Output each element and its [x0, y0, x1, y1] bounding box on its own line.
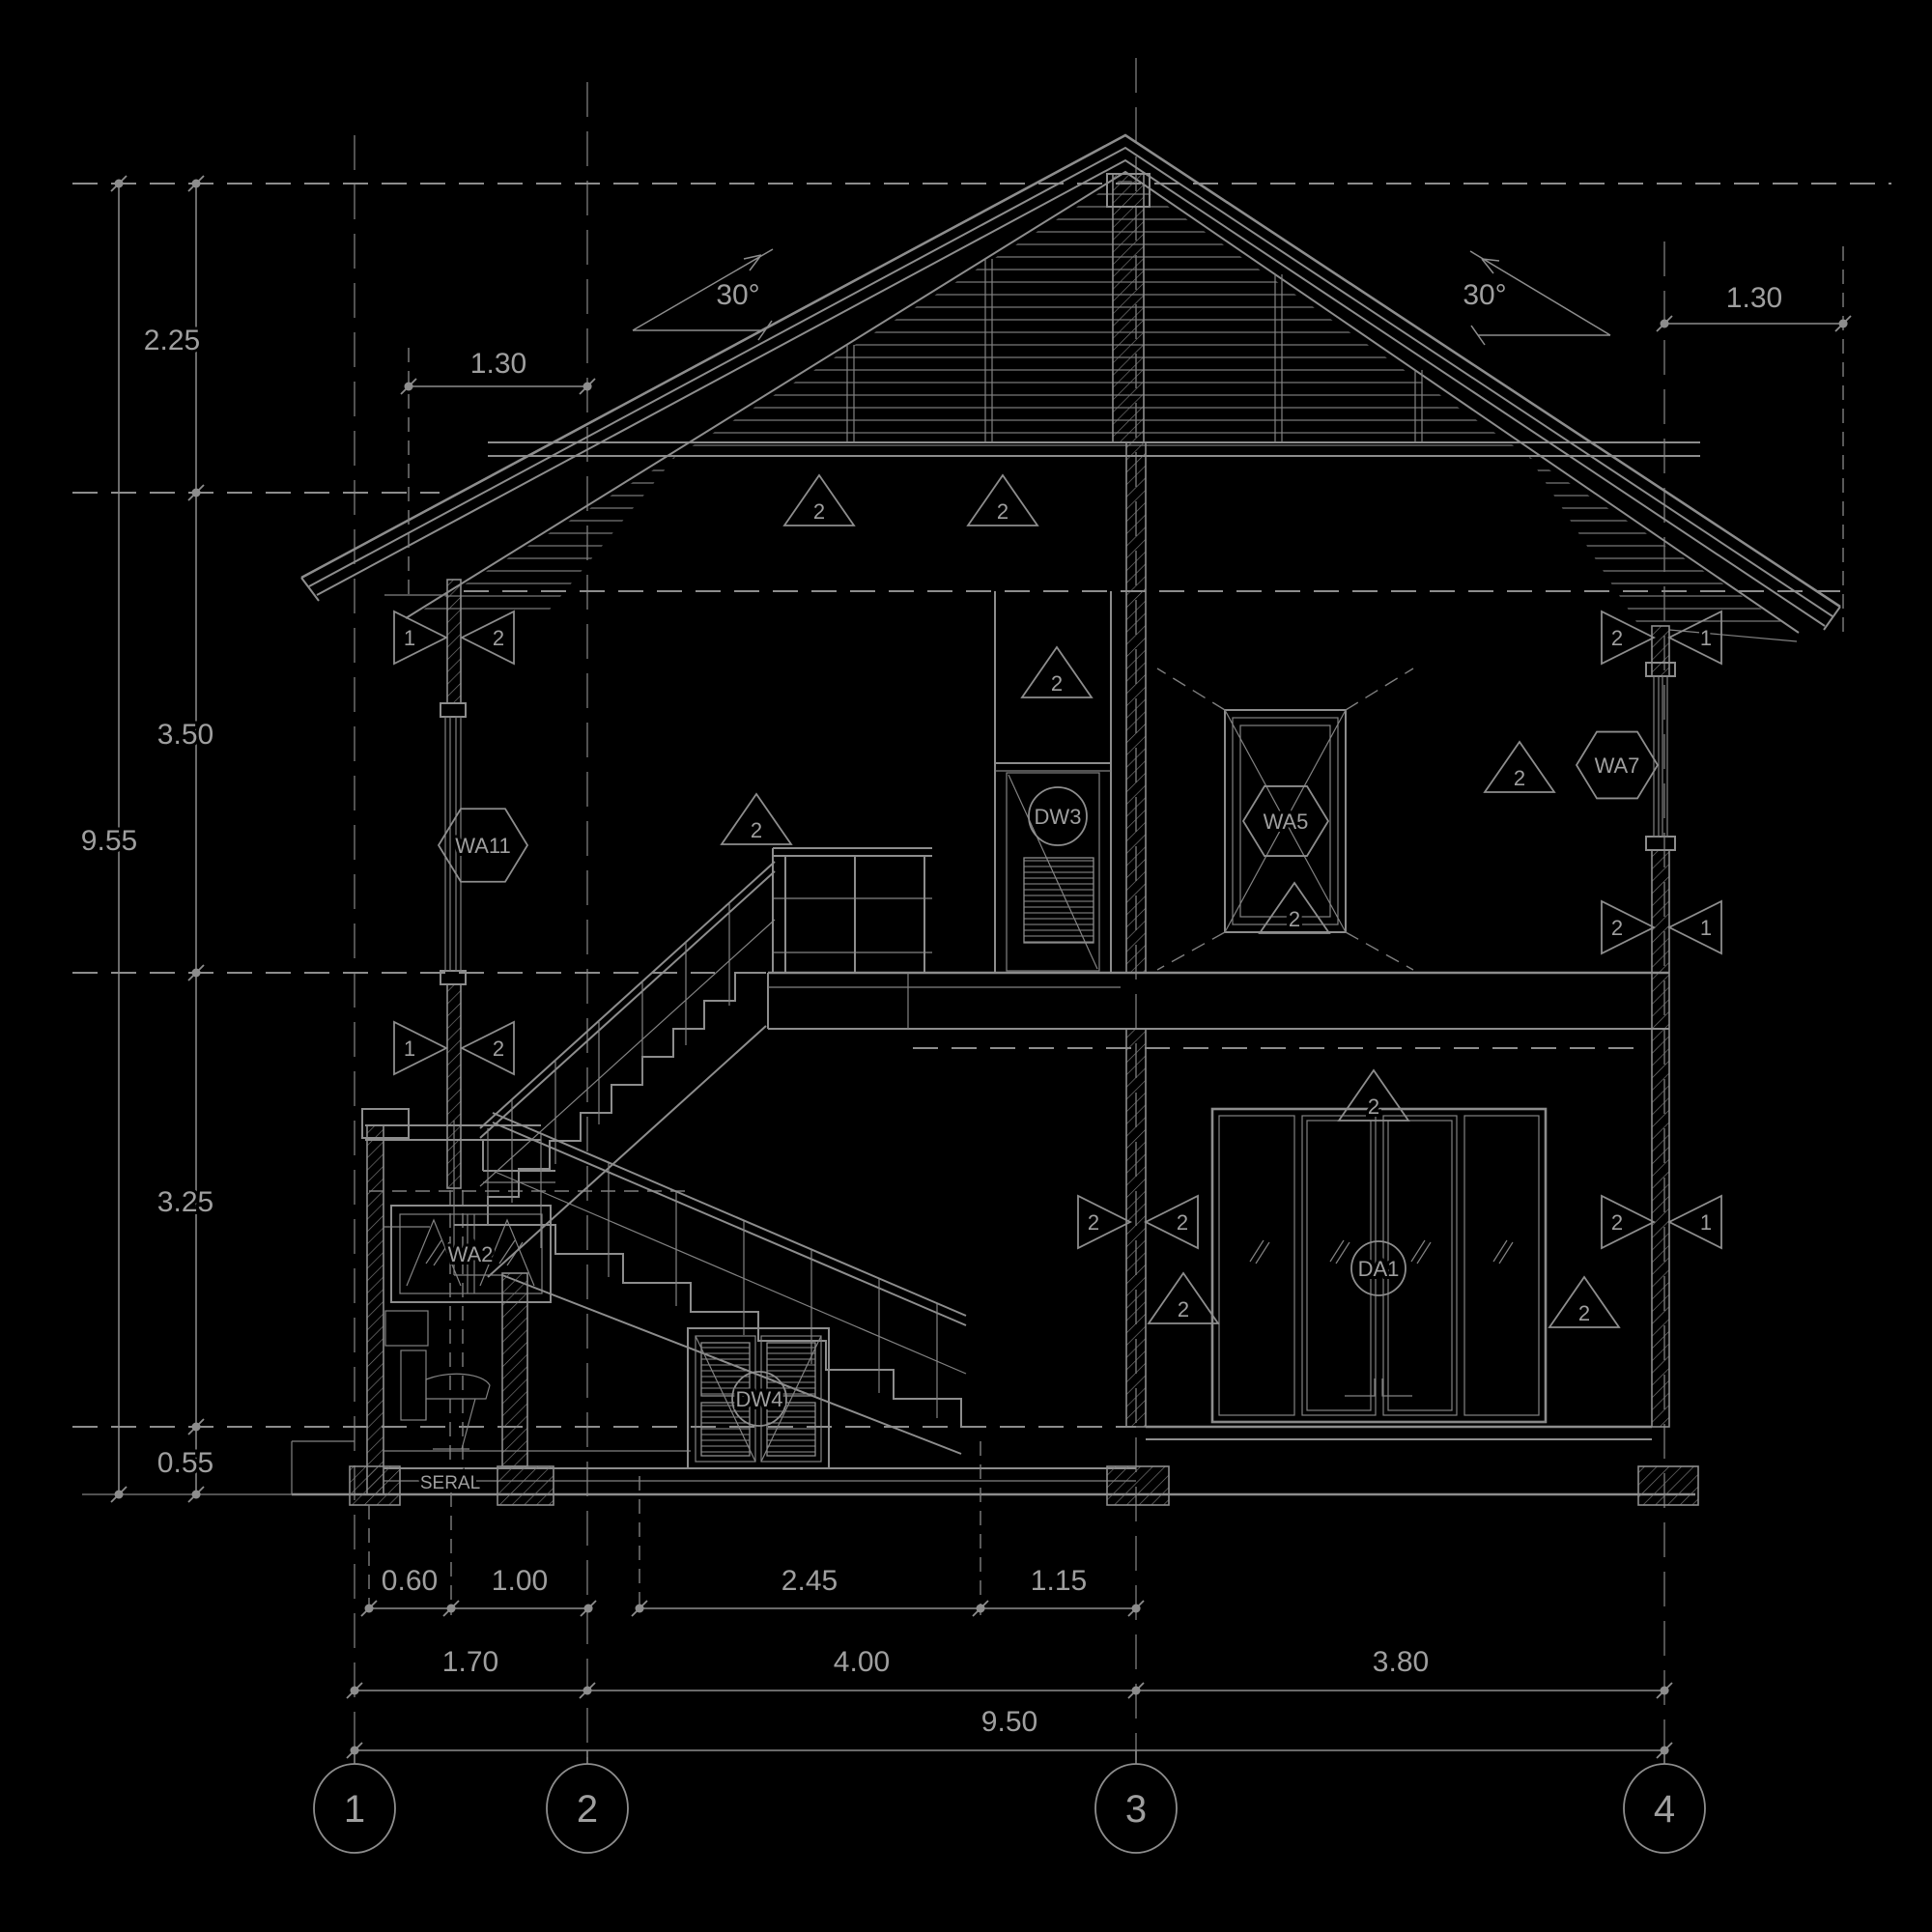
dim-text-plinth-height: 0.55 — [157, 1447, 213, 1479]
roof — [301, 135, 1840, 641]
section-bowtie-marker — [1669, 1196, 1721, 1248]
dim-text-pitch-right: 30° — [1463, 279, 1506, 311]
landing-guardrail — [773, 848, 932, 973]
finish-triangle-label: 2 — [1514, 766, 1525, 790]
section-drawing: SERAL WA2 2.253.509.553.250.551.3030°30°… — [0, 0, 1932, 1932]
dim-text-overhang-left: 1.30 — [470, 348, 526, 380]
dim-text-bay-2-3: 4.00 — [834, 1646, 890, 1678]
dim-text-upper-roof-height: 2.25 — [144, 325, 200, 356]
bowtie-label-right: 1 — [1700, 916, 1712, 940]
dim-text-first-floor-height: 3.25 — [157, 1186, 213, 1218]
finish-triangle-label: 2 — [1578, 1301, 1590, 1325]
walls — [440, 442, 1675, 1464]
toilet-label: SERAL — [420, 1473, 480, 1493]
section-bowtie-marker — [1602, 1196, 1654, 1248]
window-wa7-section — [1646, 663, 1675, 850]
grid-bubble-label: 4 — [1654, 1788, 1675, 1831]
dim-text-second-floor-height: 3.50 — [157, 719, 213, 751]
finish-triangle-label: 2 — [1368, 1094, 1379, 1119]
section-bowtie-marker — [1669, 901, 1721, 953]
bowtie-label-left: 1 — [404, 1037, 415, 1061]
section-bowtie-marker — [1146, 1196, 1198, 1248]
dim-text-stair-width: 2.45 — [781, 1565, 838, 1597]
dim-text-bath-width: 0.60 — [382, 1565, 438, 1597]
door-dw3 — [995, 591, 1111, 973]
dim-text-total-width: 9.50 — [981, 1706, 1037, 1738]
door-tag-label: DW3 — [1035, 805, 1082, 829]
bowtie-label-left: 2 — [1611, 1210, 1623, 1235]
window-tag-label: WA5 — [1264, 810, 1309, 834]
dim-text-wall-offset: 1.00 — [492, 1565, 548, 1597]
dim-text-total-height: 9.55 — [81, 825, 137, 857]
section-bowtie-marker — [394, 1022, 446, 1074]
finish-triangle-label: 2 — [997, 499, 1009, 524]
blueprint-canvas: SERAL WA2 2.253.509.553.250.551.3030°30°… — [0, 0, 1932, 1932]
grid-bubble-label: 2 — [577, 1788, 598, 1831]
grid-bubble-label: 1 — [344, 1788, 365, 1831]
grid-bubbles: 1234 — [314, 1764, 1705, 1853]
section-bowtie-marker — [1602, 901, 1654, 953]
toilet — [401, 1350, 490, 1449]
section-bowtie-marker — [462, 1022, 514, 1074]
dim-text-pitch-left: 30° — [716, 279, 759, 311]
bowtie-label-left: 1 — [404, 626, 415, 650]
bowtie-label-right: 1 — [1700, 1210, 1712, 1235]
window-tag-label: WA11 — [455, 834, 510, 858]
finish-triangle-label: 2 — [1178, 1297, 1189, 1321]
dim-text-overhang-right: 1.30 — [1726, 282, 1782, 314]
door-tag-label: DW4 — [736, 1387, 783, 1411]
bowtie-label-left: 2 — [1088, 1210, 1099, 1235]
bubble-stubs — [355, 1750, 1664, 1764]
dim-text-door-offset: 1.15 — [1031, 1565, 1087, 1597]
finish-triangle-label: 2 — [1289, 907, 1300, 931]
bowtie-label-right: 2 — [1177, 1210, 1188, 1235]
bowtie-label-right: 2 — [493, 1037, 504, 1061]
bowtie-label-left: 2 — [1611, 626, 1623, 650]
bowtie-label-right: 1 — [1700, 626, 1712, 650]
bowtie-label-right: 2 — [493, 626, 504, 650]
bowtie-label-left: 2 — [1611, 916, 1623, 940]
section-bowtie-marker — [1078, 1196, 1130, 1248]
finish-triangle-label: 2 — [751, 818, 762, 842]
dim-text-bay-3-4: 3.80 — [1373, 1646, 1429, 1678]
dim-text-bay-1-2: 1.70 — [442, 1646, 498, 1678]
finish-triangle-label: 2 — [813, 499, 825, 524]
door-tag-label: DA1 — [1358, 1257, 1400, 1281]
annotation-symbols: 222222222121221212221WA11WA5WA7DW3DW4DA1 — [394, 475, 1721, 1426]
dimension-texts: 2.253.509.553.250.551.3030°30°1.300.601.… — [81, 279, 1782, 1738]
grid-bubble-label: 3 — [1125, 1788, 1147, 1831]
bath-window-label: WA2 — [448, 1242, 494, 1266]
finish-triangle-label: 2 — [1051, 671, 1063, 696]
window-tag-label: WA7 — [1595, 753, 1640, 778]
